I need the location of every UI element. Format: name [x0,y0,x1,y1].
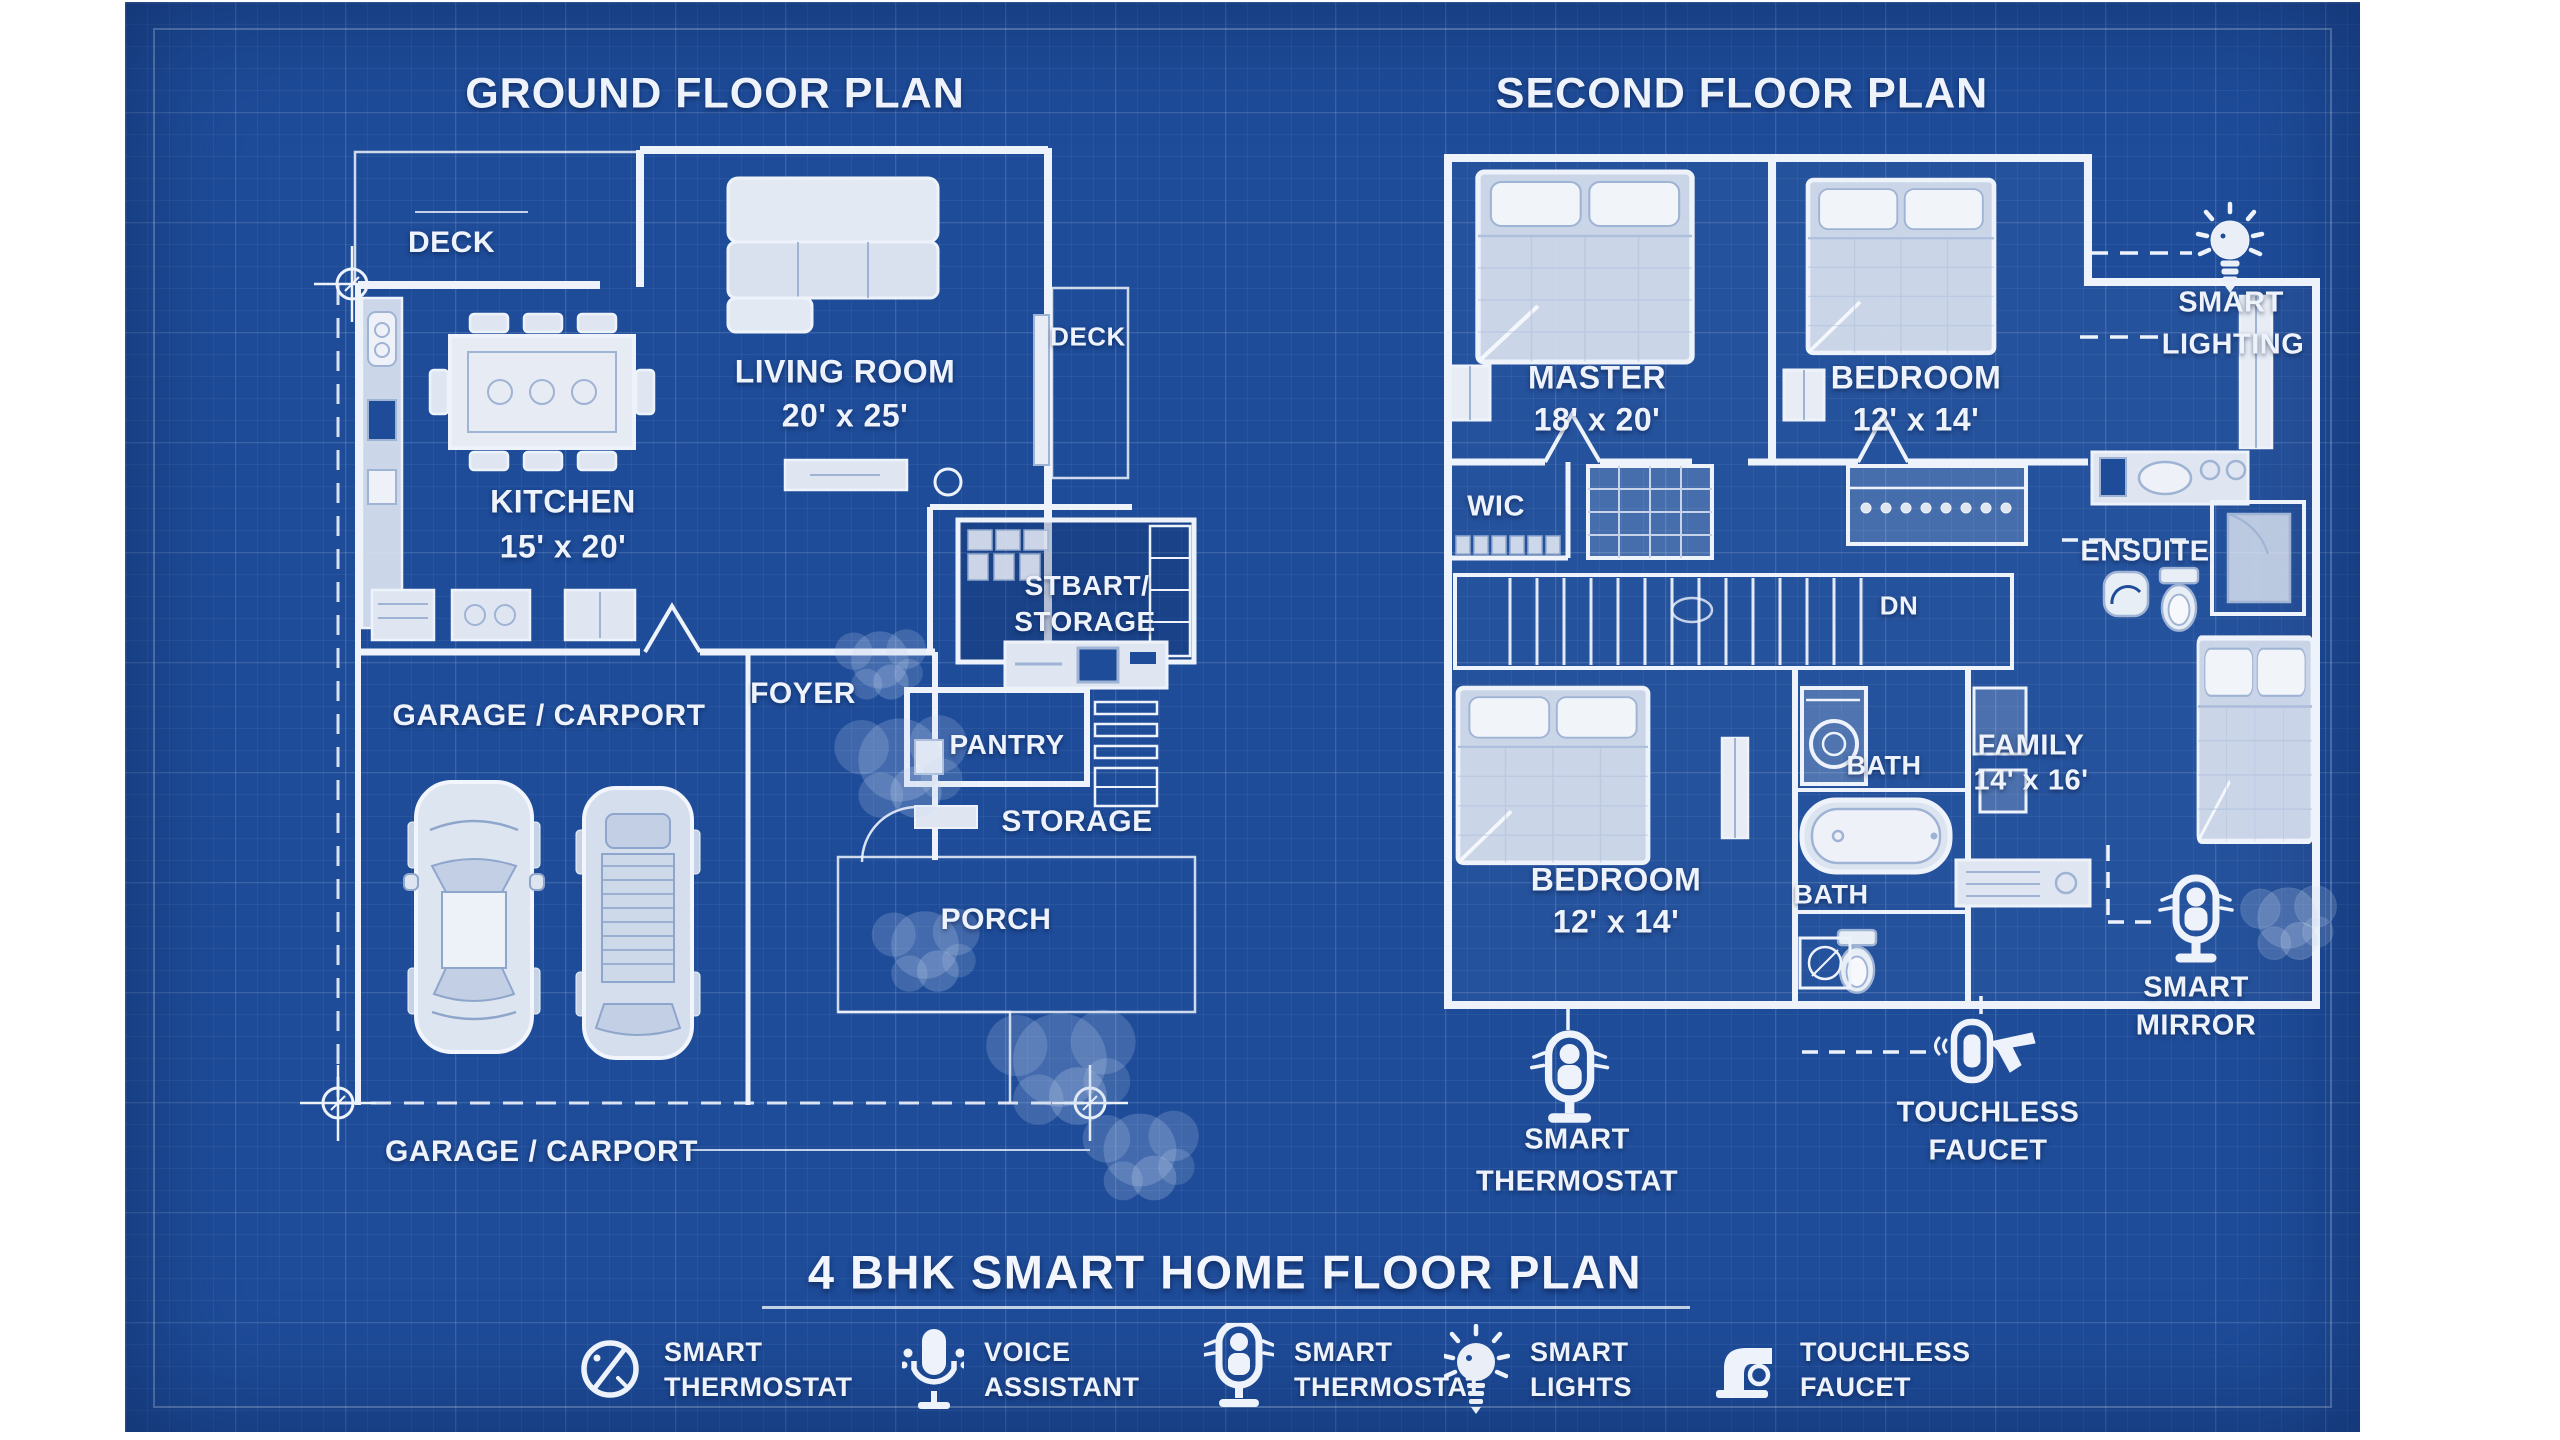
legend-label: LIGHTS [1530,1370,1632,1405]
garage-label: GARAGE / CARPORT [392,699,705,733]
smart-thermostat-label-line2: THERMOSTAT [1476,1166,1678,1199]
smart-thermostat-icon [1532,1034,1608,1122]
floor-plan-drawing [0,0,2560,1440]
storage-label: STORAGE [1001,805,1152,839]
side-table [935,469,961,495]
smart-thermostat-device-icon [1204,1323,1274,1417]
legend-item-smart-thermostat-2: SMART THERMOSTAT [1204,1326,1482,1414]
smart-mirror-label-line2: MIRROR [2136,1010,2257,1043]
bedroom2-dims: 12' x 14' [1853,402,1979,439]
sofa [728,178,938,332]
smart-thermostat-callout [1532,1008,1608,1122]
smart-storage-label-line2: STORAGE [1014,606,1155,638]
bedroom3-label: BEDROOM [1531,862,1702,899]
smart-storage-label-line1: STBART/ [1025,570,1150,602]
master-dims: 18' x 20' [1534,402,1660,439]
voice-assistant-mic-icon [902,1329,964,1411]
smart-mirror-label-line1: SMART [2143,972,2249,1005]
car-suv [576,788,700,1058]
smart-thermostat-gauge-icon [578,1337,644,1403]
bedroom2-bed [1808,180,1994,353]
wic-label: WIC [1467,491,1525,524]
sliding-door [1034,315,1049,465]
ensuite-label: ENSUITE [2080,536,2209,569]
family-bed [2198,638,2312,841]
family-dims: 14' x 16' [1973,765,2088,798]
touchless-faucet-icon [1936,1022,2036,1080]
master-label: MASTER [1528,360,1666,397]
legend-label: VOICE [984,1335,1140,1370]
foyer-label: FOYER [750,677,856,711]
legend-item-smart-thermostat-1: SMART THERMOSTAT [578,1326,852,1414]
legend-label: FAUCET [1800,1370,1971,1405]
legend-item-smart-lights: SMART LIGHTS [1444,1326,1632,1414]
porch-label: PORCH [941,903,1052,937]
legend-label: THERMOSTAT [664,1370,852,1405]
second-floor-title: SECOND FLOOR PLAN [1496,70,1988,119]
bedroom3-dims: 12' x 14' [1553,904,1679,941]
master-bed [1478,172,1692,362]
legend-label: ASSISTANT [984,1370,1140,1405]
pantry-label: PANTRY [950,729,1065,761]
smart-thermostat-label-line1: SMART [1524,1124,1630,1157]
bedroom2-label: BEDROOM [1831,360,2002,397]
legend-label: TOUCHLESS [1800,1335,1971,1370]
boundary-garage-label: GARAGE / CARPORT [385,1135,698,1169]
legend-label: SMART [664,1335,852,1370]
smart-lighting-label-line1: SMART [2178,287,2284,320]
bath-upper-label: BATH [1847,751,1922,782]
smart-lights-bulb-icon [1444,1324,1510,1416]
legend-item-touchless-faucet: TOUCHLESS FAUCET [1710,1326,1971,1414]
page-title: 4 BHK SMART HOME FLOOR PLAN [808,1245,1642,1300]
living-room-label: LIVING ROOM [735,354,956,391]
legend-label: SMART [1530,1335,1632,1370]
living-room-dims: 20' x 25' [782,398,908,435]
dining-table [430,314,654,470]
family-label: FAMILY [1978,730,2085,763]
ground-floor-title: GROUND FLOOR PLAN [465,70,965,119]
legend-item-voice-assistant: VOICE ASSISTANT [902,1326,1140,1414]
dn-label: DN [1880,591,1919,622]
touchless-faucet-label-line2: FAUCET [1929,1135,2048,1168]
blueprint-page: GROUND FLOOR PLAN SECOND FLOOR PLAN DECK… [0,0,2560,1440]
kitchen-dims: 15' x 20' [500,529,626,566]
deck-right-label: DECK [1050,322,1126,353]
title-underline [762,1306,1690,1309]
deck-top-label: DECK [408,226,495,260]
touchless-faucet-legend-icon [1710,1338,1780,1402]
kitchen-label: KITCHEN [490,484,636,521]
bath-lower-label: BATH [1794,880,1869,911]
car-sedan [404,782,544,1052]
ground-floor-plan [300,148,1199,1200]
smart-lighting-label-line2: LIGHTING [2162,329,2305,362]
bedroom3-bed [1458,688,1648,863]
touchless-faucet-label-line1: TOUCHLESS [1897,1097,2080,1130]
